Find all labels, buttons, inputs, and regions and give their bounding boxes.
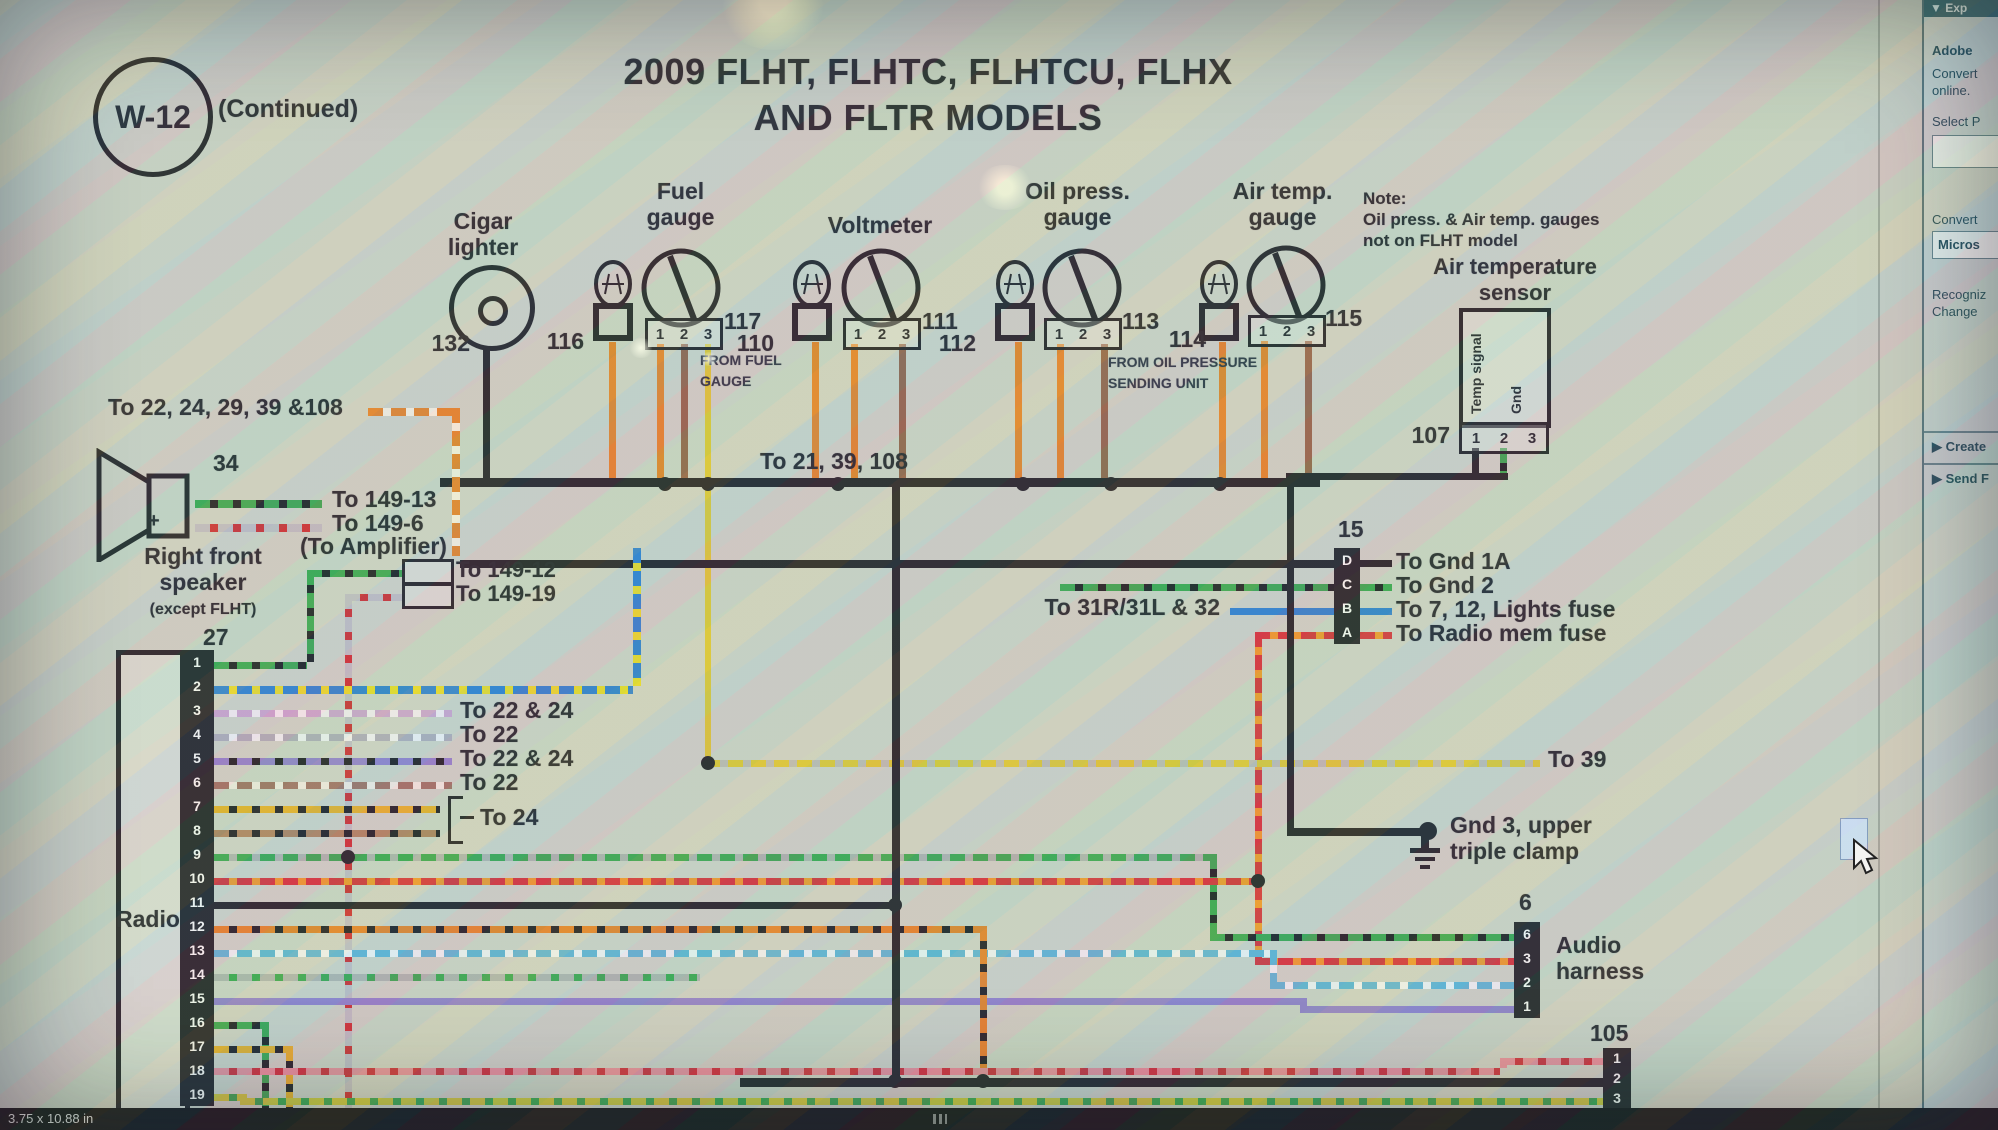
wire-tanBlack (214, 830, 440, 837)
document-size-readout: 3.75 x 10.88 in (8, 1108, 93, 1130)
select-file-label: Select P (1924, 112, 1998, 129)
pin-C: C (1334, 572, 1360, 596)
temp-signal-label: Temp signal (1468, 314, 1484, 414)
wire-brownWhite (214, 782, 452, 789)
pin-2: 2 (1514, 970, 1540, 994)
conn105-number: 105 (1590, 1020, 1628, 1046)
pin-A: A (1334, 620, 1360, 644)
right-front-speaker-label: Right frontspeaker (133, 543, 273, 595)
junction-dot (888, 1074, 902, 1088)
pin-4: 4 (180, 722, 214, 746)
except-flht-label: (except FLHT) (128, 597, 278, 623)
oil-bulb-number: 112 (932, 330, 976, 356)
voltmeter-pins: 123 (843, 318, 921, 350)
to-39-label: To 39 (1548, 746, 1606, 772)
wire-orangeWhite (368, 408, 452, 416)
taskbar: 3.75 x 10.88 in (0, 1108, 1998, 1130)
pin-1: 1 (1472, 430, 1480, 447)
radio-p6-label: To 22 (460, 769, 518, 795)
conn15-number: 15 (1338, 516, 1364, 542)
radio-label: Radio (116, 906, 178, 932)
pin-D: D (1334, 548, 1360, 572)
taskbar-icon[interactable] (933, 1114, 947, 1124)
pin-3: 3 (902, 326, 910, 343)
mouse-cursor-icon (1850, 838, 1884, 878)
page-edge (1878, 0, 1924, 1108)
pin-18: 18 (180, 1058, 214, 1082)
wire-pinkRed (1500, 1058, 1603, 1065)
wire-orangeBlack (980, 926, 987, 1078)
wire-black (483, 346, 490, 478)
conn6-number: 6 (1519, 889, 1532, 915)
wire-redOrange (1255, 958, 1514, 965)
wire-greenBlack (1210, 854, 1217, 934)
pin-1: 1 (1514, 994, 1540, 1018)
audio-harness-label: Audioharness (1556, 932, 1644, 984)
file-select-box[interactable] (1932, 135, 1998, 168)
send-files-section[interactable]: ▶ Send F (1924, 465, 1998, 487)
pin-13: 13 (180, 938, 214, 962)
photographed-monitor: W-12 (Continued) 2009 FLHT, FLHTC, FLHTC… (0, 0, 1998, 1130)
speaker-plus: + (148, 508, 160, 534)
junction-dot (701, 477, 715, 491)
wire-black (214, 902, 892, 909)
diagram-badge: W-12 (115, 99, 191, 136)
pin-6: 6 (180, 770, 214, 794)
wire-greenGray (214, 854, 1210, 861)
export-pdf-panel: ▼ Exp Adobe Convert online. Select P Con… (1922, 0, 1998, 1108)
diagram-title-line1: 2009 FLHT, FLHTC, FLHTCU, FLHX (528, 50, 1328, 94)
pin-2: 2 (878, 326, 886, 343)
gnd3-label: Gnd 3, uppertriple clamp (1450, 812, 1592, 864)
wire-yellowGray (705, 760, 1540, 767)
diagram-title-line2: AND FLTR MODELS (528, 96, 1328, 140)
to-31r-label: To 31R/31L & 32 (1020, 594, 1220, 620)
pin-6: 6 (1514, 922, 1540, 946)
air-temp-label: Air temp.gauge (1195, 178, 1370, 230)
wire-brown (681, 344, 688, 478)
pin-3: 3 (1514, 946, 1540, 970)
wire-black (1286, 473, 1508, 480)
chevron-down-icon: ▼ (1930, 1, 1942, 15)
wire-greenBlack (307, 570, 314, 662)
wire-purple (1300, 1006, 1514, 1013)
wire-black (740, 1078, 1603, 1087)
to-24-bracket (448, 796, 463, 844)
pin-14: 14 (180, 962, 214, 986)
wire-grayRed (195, 524, 322, 532)
to-149-19-label: To 149-19 (456, 581, 556, 607)
pin-2: 2 (1500, 430, 1508, 447)
chevron-right-icon: ▶ (1932, 439, 1942, 454)
oil-press-label: Oil press.gauge (990, 178, 1165, 230)
pin-10: 10 (180, 866, 214, 890)
change-link[interactable]: Change (1924, 302, 1998, 319)
wire-brown (1101, 344, 1108, 478)
voltmeter-label: Voltmeter (800, 212, 960, 238)
cigar-lighter-inner (478, 296, 508, 326)
pin-15: 15 (180, 986, 214, 1010)
wire-redOrange (214, 878, 1255, 885)
gnd-label: Gnd (1508, 368, 1524, 414)
diagram-badge-circle: W-12 (93, 57, 213, 177)
bus-label: To 21, 39, 108 (760, 448, 908, 474)
fuel-bulb-number: 116 (540, 328, 584, 354)
from-oil-note: FROM OIL PRESSURESENDING UNIT (1108, 352, 1257, 394)
wire-greenBlack (214, 662, 307, 669)
radio-p3-label: To 22 & 24 (460, 697, 573, 723)
wire-orangeBlack (214, 926, 980, 933)
panel-desc-line2: online. (1924, 81, 1998, 98)
wire-black (1287, 828, 1425, 836)
wire-greenBlack (195, 500, 322, 508)
pin-1: 1 (180, 650, 214, 674)
pin-2: 2 (1603, 1068, 1631, 1088)
pin-16: 16 (180, 1010, 214, 1034)
air-sensor-label: Air temperaturesensor (1415, 254, 1615, 306)
wire-yellow (705, 344, 711, 760)
radio-connector: 12345678910111213141516171819 (180, 650, 214, 1106)
conn15: DCBA (1334, 548, 1360, 644)
junction-dot (888, 898, 902, 912)
air-bulb-number: 114 (1158, 326, 1206, 352)
pin-3: 3 (1103, 326, 1111, 343)
pin-7: 7 (180, 794, 214, 818)
bundle-label: To 22, 24, 29, 39 &108 (108, 394, 343, 420)
pin-9: 9 (180, 842, 214, 866)
pin-2: 2 (1283, 323, 1291, 340)
fuel-gauge-label: Fuelgauge (608, 178, 753, 230)
wire-greenBlack (1210, 934, 1514, 941)
air-sensor-number: 107 (1402, 422, 1450, 448)
wire-black (440, 478, 1320, 487)
pin-2: 2 (180, 674, 214, 698)
pin-2: 2 (1079, 326, 1087, 343)
wire-redOrange (1255, 632, 1334, 639)
conn15-label-b: To 7, 12, Lights fuse (1396, 596, 1615, 622)
wire-blue (1230, 608, 1334, 615)
wire-orange (657, 344, 664, 478)
conn-149-19-box (402, 583, 454, 609)
conn15-label-d: To Gnd 1A (1396, 548, 1511, 574)
pin-11: 11 (180, 890, 214, 914)
junction-dot (976, 1074, 990, 1088)
junction-dot (1213, 477, 1227, 491)
junction-dot (1251, 874, 1265, 888)
cigar-lighter-label: Cigarlighter (398, 208, 568, 260)
pin-3: 3 (180, 698, 214, 722)
wire-ltBlueWhite (1270, 982, 1514, 989)
wire-blueYellow (214, 686, 633, 694)
air-gauge-number: 115 (1325, 305, 1362, 331)
pin-5: 5 (180, 746, 214, 770)
wire-purpleBlack (214, 758, 452, 765)
panel-header[interactable]: ▼ Exp (1924, 0, 1998, 17)
oil-gauge-number: 113 (1122, 308, 1159, 334)
wire-ltBlueWhite (214, 950, 1270, 957)
wire-black (1287, 482, 1294, 828)
wire-blue (1360, 608, 1392, 615)
pin-1: 1 (656, 326, 664, 343)
conn6: 6321 (1514, 922, 1540, 1018)
format-dropdown[interactable]: Micros (1932, 231, 1998, 259)
wire-ltBlueWhite (1270, 950, 1277, 982)
pin-19: 19 (180, 1082, 214, 1106)
oil-illumination-bulb-icon (989, 260, 1041, 342)
wire-redOrange (1360, 632, 1392, 639)
pin-1: 1 (1259, 323, 1267, 340)
wire-yellowBlack (214, 806, 440, 813)
wire-orangeWhite (452, 408, 460, 556)
conn105: 123 (1603, 1048, 1631, 1108)
to-149-13-label: To 149-13 (332, 486, 436, 512)
pin-17: 17 (180, 1034, 214, 1058)
oil-gauge-pins: 123 (1044, 318, 1122, 350)
wire-greenBlack (307, 570, 402, 577)
chevron-right-icon: ▶ (1932, 471, 1942, 486)
wire-orange (1057, 344, 1064, 478)
to-amplifier-label: (To Amplifier) (300, 533, 447, 559)
continued-label: (Continued) (218, 96, 358, 122)
from-fuel-note: FROM FUELGAUGE (700, 350, 782, 392)
speaker-number: 34 (213, 450, 239, 476)
wire-purple (214, 998, 1300, 1005)
adobe-brand-label: Adobe (1924, 41, 1998, 58)
voltmeter-illumination-bulb-icon (786, 260, 838, 342)
wire-orange (609, 342, 616, 478)
wire-pinkWhite (214, 710, 452, 717)
pin-8: 8 (180, 818, 214, 842)
convert-to-label: Convert (1924, 210, 1998, 227)
fuel-gauge-pins: 123 (645, 318, 723, 350)
wire-greenBlack (1360, 584, 1392, 591)
radio-p78-label: To 24 (480, 804, 538, 830)
wire-black (1360, 560, 1392, 567)
wire-orange (1015, 342, 1022, 478)
pin-3: 3 (704, 326, 712, 343)
wire-yellowGreen (240, 1098, 1603, 1105)
create-pdf-section[interactable]: ▶ Create (1924, 433, 1998, 455)
wire-orange (1261, 341, 1268, 478)
note-text: Note:Oil press. & Air temp. gaugesnot on… (1363, 188, 1600, 251)
wire-yellowBlack (214, 1046, 286, 1053)
pin-1: 1 (854, 326, 862, 343)
pin-1: 1 (1603, 1048, 1631, 1068)
wire-grayWhite (214, 734, 452, 741)
pin-1: 1 (1055, 326, 1063, 343)
wire-yellowGreen (214, 1094, 240, 1101)
wire-grayRed (345, 594, 402, 601)
pin-2: 2 (680, 326, 688, 343)
pin-3: 3 (1603, 1088, 1631, 1108)
pin-3: 3 (1528, 430, 1536, 447)
wire-black (892, 482, 900, 1078)
wire-grayGreen (214, 974, 700, 981)
conn15-label-a: To Radio mem fuse (1396, 620, 1606, 646)
cigar-number: 132 (418, 330, 470, 356)
junction-dot (1104, 477, 1118, 491)
wire-brown (1305, 341, 1312, 478)
junction-dot (1419, 822, 1437, 840)
conn15-label-c: To Gnd 2 (1396, 572, 1494, 598)
wire-blueYellow (633, 548, 641, 686)
to-149-12-label: To 149-12 (456, 557, 556, 583)
wire-redOrange (1255, 632, 1262, 958)
wire-greenBlack (214, 1022, 262, 1029)
junction-dot (1016, 477, 1030, 491)
fuel-illumination-bulb-icon (587, 260, 639, 342)
junction-dot (341, 850, 355, 864)
radio-p5-label: To 22 & 24 (460, 745, 573, 771)
pin-B: B (1334, 596, 1360, 620)
junction-dot (831, 477, 845, 491)
recognize-text-label: Recogniz (1924, 285, 1998, 302)
junction-dot (701, 756, 715, 770)
wire-pinkRed (214, 1068, 1500, 1075)
conn-149-12-box (402, 559, 454, 585)
air-gauge-pins: 123 (1248, 315, 1326, 347)
panel-desc-line1: Convert (1924, 64, 1998, 81)
junction-dot (658, 477, 672, 491)
air-sensor-pins: 123 (1459, 422, 1549, 454)
radio-conn-number: 27 (203, 624, 229, 650)
radio-p4-label: To 22 (460, 721, 518, 747)
radio-outline (116, 650, 190, 1116)
pin-3: 3 (1307, 323, 1315, 340)
pin-12: 12 (180, 914, 214, 938)
